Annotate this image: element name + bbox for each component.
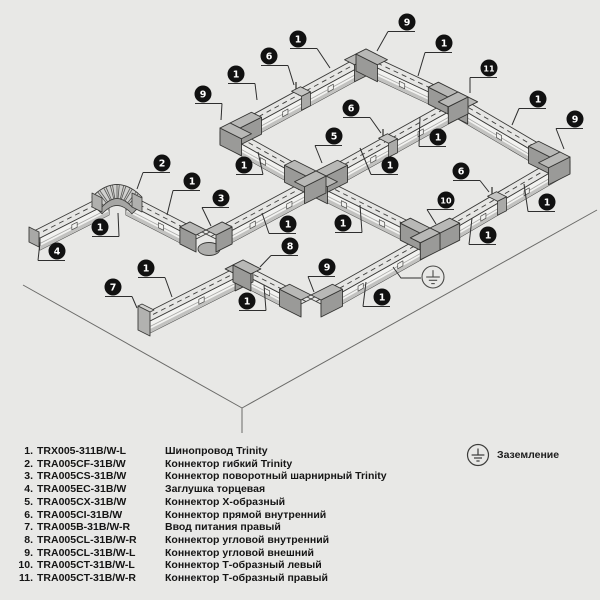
svg-text:5: 5 (331, 131, 338, 142)
legend-part-description: Коннектор угловой внешний (165, 547, 387, 560)
svg-text:9: 9 (404, 17, 411, 28)
svg-text:1: 1 (241, 160, 248, 171)
legend-part-code: TRX005-311B/W-L (37, 445, 161, 458)
svg-text:4: 4 (54, 246, 61, 257)
svg-text:1: 1 (295, 34, 302, 45)
svg-text:3: 3 (218, 193, 225, 204)
svg-text:9: 9 (200, 89, 207, 100)
legend-part-description: Коннектор поворотный шарнирный Trinity (165, 470, 387, 483)
legend-row: 9.TRA005CL-31B/W-LКоннектор угловой внеш… (16, 547, 387, 560)
svg-text:1: 1 (387, 160, 394, 171)
legend-part-description: Шинопровод Trinity (165, 445, 387, 458)
swivel-hinge-connector (180, 222, 232, 256)
legend-row-number: 1. (16, 445, 33, 458)
legend-part-description: Коннектор Т-образный левый (165, 559, 387, 572)
svg-text:9: 9 (324, 262, 331, 273)
legend-part-code: TRA005CL-31B/W-R (37, 534, 161, 547)
legend-row: 4.TRA005EC-31B/WЗаглушка торцевая (16, 483, 387, 496)
svg-text:7: 7 (110, 282, 117, 293)
svg-text:2: 2 (159, 158, 166, 169)
svg-text:1: 1 (233, 69, 240, 80)
callout-1: 1 (167, 173, 201, 216)
legend-row-number: 5. (16, 496, 33, 509)
ceiling-plane (23, 210, 597, 433)
legend-row-number: 10. (16, 559, 33, 572)
callout-11: 11 (470, 60, 498, 94)
svg-text:8: 8 (287, 241, 294, 252)
legend-row-number: 4. (16, 483, 33, 496)
svg-text:6: 6 (348, 103, 355, 114)
callout-6: 6 (343, 100, 382, 134)
legend-row: 11.TRA005CT-31B/W-RКоннектор Т-образный … (16, 572, 387, 585)
svg-text:1: 1 (340, 218, 347, 229)
legend-row: 2.TRA005CF-31B/WКоннектор гибкий Trinity (16, 458, 387, 471)
legend-part-code: TRA005CT-31B/W-R (37, 572, 161, 585)
svg-text:10: 10 (440, 196, 452, 205)
legend-row: 6.TRA005CI-31B/WКоннектор прямой внутрен… (16, 509, 387, 522)
grounding-label: Заземление (497, 449, 559, 461)
svg-text:1: 1 (379, 292, 386, 303)
legend-part-description: Заглушка торцевая (165, 483, 387, 496)
legend-row-number: 9. (16, 547, 33, 560)
callout-1: 1 (228, 66, 258, 101)
svg-text:1: 1 (435, 132, 442, 143)
legend-part-description: Ввод питания правый (165, 521, 387, 534)
grounding-icon (466, 443, 490, 467)
svg-text:11: 11 (483, 64, 495, 73)
legend-row: 10.TRA005CT-31B/W-LКоннектор Т-образный … (16, 559, 387, 572)
callout-9: 9 (377, 14, 416, 52)
callout-9: 9 (556, 111, 584, 150)
legend-row-number: 7. (16, 521, 33, 534)
svg-text:1: 1 (544, 197, 551, 208)
legend-part-code: TRA005EC-31B/W (37, 483, 161, 496)
legend-row-number: 3. (16, 470, 33, 483)
svg-text:1: 1 (441, 38, 448, 49)
grounding-legend: Заземление (466, 443, 559, 467)
legend-row: 1.TRX005-311B/W-LШинопровод Trinity (16, 445, 387, 458)
legend-row: 7.TRA005B-31B/W-RВвод питания правый (16, 521, 387, 534)
legend-part-code: TRA005CF-31B/W (37, 458, 161, 471)
callout-1: 1 (138, 260, 173, 298)
svg-text:1: 1 (285, 219, 292, 230)
legend-row-number: 2. (16, 458, 33, 471)
corner-connector-outer-bottom (280, 284, 343, 317)
legend-part-description: Коннектор Х-образный (165, 496, 387, 509)
legend-part-description: Коннектор прямой внутренний (165, 509, 387, 522)
legend-part-code: TRA005CI-31B/W (37, 509, 161, 522)
legend-part-code: TRA005CT-31B/W-L (37, 559, 161, 572)
callout-2: 2 (137, 155, 171, 190)
legend-part-code: TRA005CX-31B/W (37, 496, 161, 509)
svg-text:6: 6 (266, 51, 273, 62)
legend-row-number: 8. (16, 534, 33, 547)
legend-row: 8.TRA005CL-31B/W-RКоннектор угловой внут… (16, 534, 387, 547)
callout-1: 1 (290, 31, 331, 69)
svg-text:9: 9 (572, 114, 579, 125)
callout-6: 6 (261, 48, 295, 86)
legend-part-description: Коннектор гибкий Trinity (165, 458, 387, 471)
svg-text:1: 1 (485, 230, 492, 241)
svg-text:6: 6 (458, 166, 465, 177)
legend-row-number: 6. (16, 509, 33, 522)
svg-text:1: 1 (244, 296, 251, 307)
svg-text:1: 1 (97, 222, 104, 233)
parts-legend: 1.TRX005-311B/W-LШинопровод Trinity2.TRA… (16, 445, 387, 585)
installation-scheme-page: 412131196119111611519161110191817 1.TRX0… (0, 0, 600, 600)
legend-part-code: TRA005CS-31B/W (37, 470, 161, 483)
callout-8: 8 (260, 238, 299, 268)
callout-9: 9 (195, 86, 223, 121)
legend-part-description: Коннектор Т-образный правый (165, 572, 387, 585)
svg-text:1: 1 (189, 176, 196, 187)
callouts: 412131196119111611519161110191817 (38, 14, 584, 311)
legend-row: 3.TRA005CS-31B/WКоннектор поворотный шар… (16, 470, 387, 483)
flexible-connector (92, 185, 142, 214)
callout-3: 3 (202, 190, 230, 227)
legend-part-description: Коннектор угловой внутренний (165, 534, 387, 547)
svg-text:1: 1 (143, 263, 150, 274)
legend-part-code: TRA005CL-31B/W-L (37, 547, 161, 560)
callout-1: 1 (418, 35, 453, 77)
legend-part-code: TRA005B-31B/W-R (37, 521, 161, 534)
callout-7: 7 (105, 279, 138, 309)
callout-1: 1 (512, 91, 547, 126)
callout-6: 6 (453, 163, 490, 193)
callout-5: 5 (315, 128, 343, 164)
svg-text:1: 1 (535, 94, 542, 105)
legend-row: 5.TRA005CX-31B/WКоннектор Х-образный (16, 496, 387, 509)
legend-row-number: 11. (16, 572, 33, 585)
